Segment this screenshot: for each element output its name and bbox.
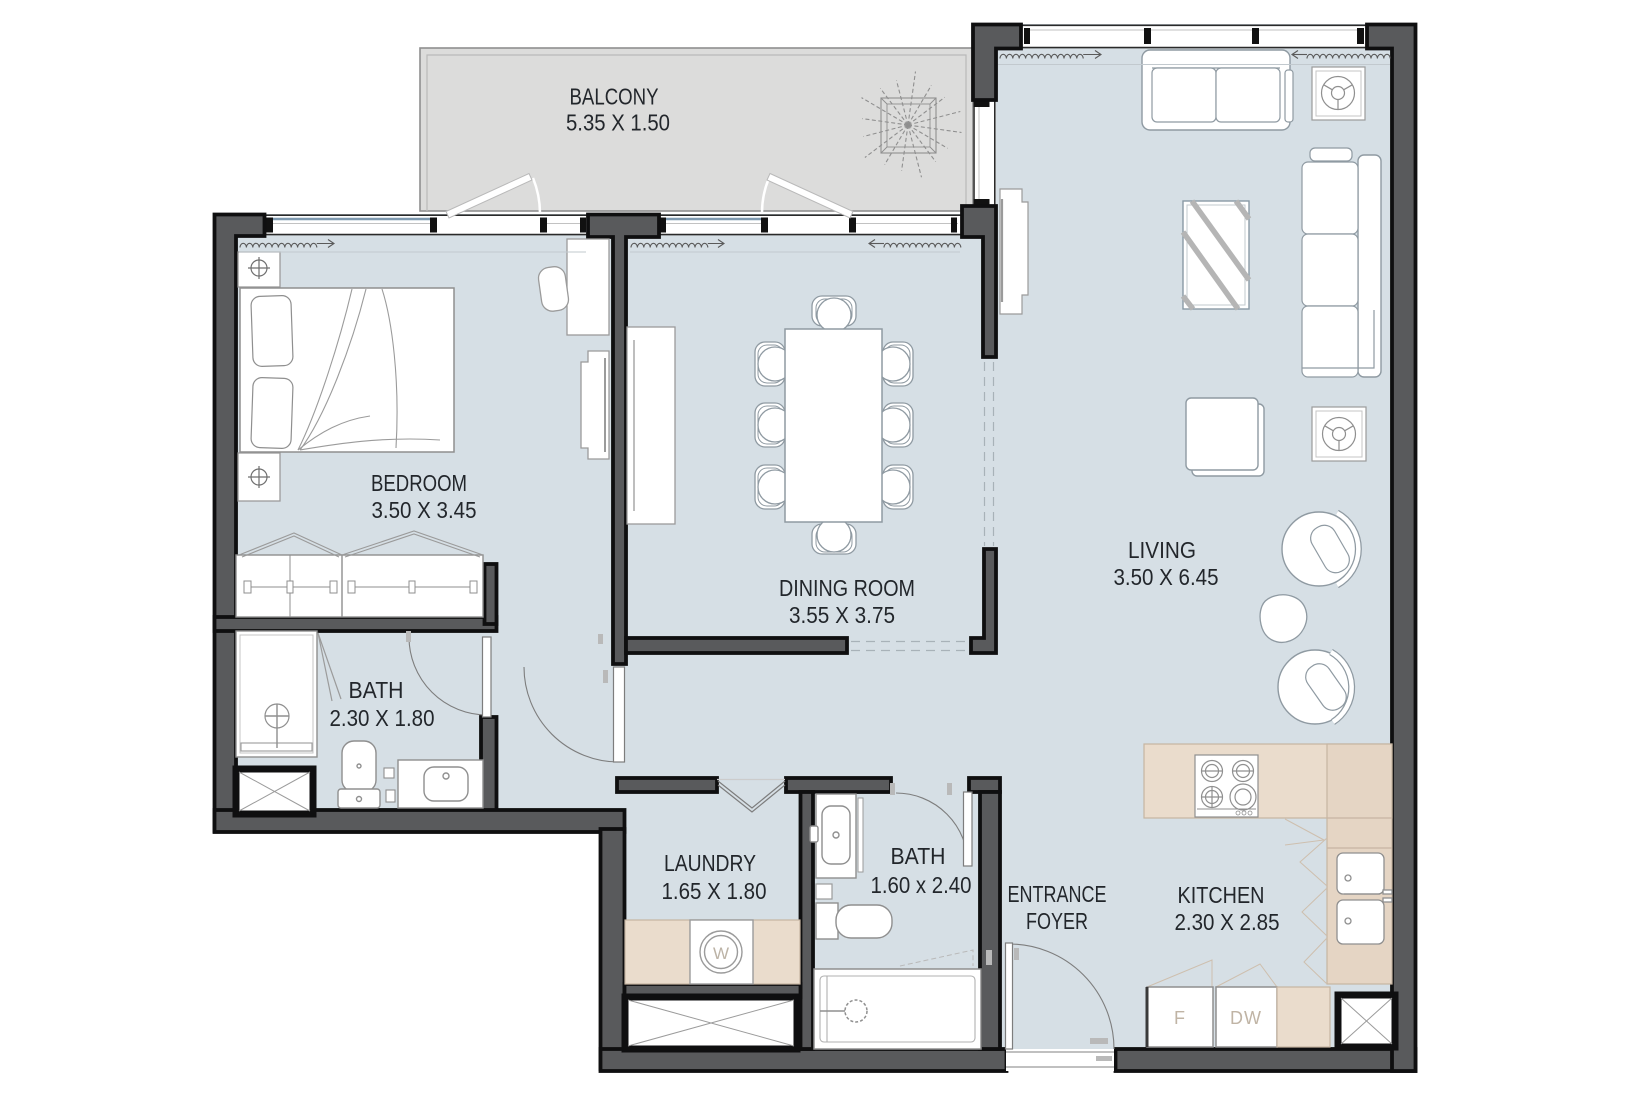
svg-text:DINING ROOM: DINING ROOM — [779, 575, 915, 601]
svg-text:3.50 X 3.45: 3.50 X 3.45 — [372, 497, 477, 523]
svg-text:3.50 X 6.45: 3.50 X 6.45 — [1114, 564, 1219, 590]
svg-text:KITCHEN: KITCHEN — [1178, 882, 1265, 908]
svg-text:BATH: BATH — [349, 677, 404, 703]
svg-text:BEDROOM: BEDROOM — [371, 470, 467, 496]
svg-text:3.55 X 3.75: 3.55 X 3.75 — [789, 602, 895, 628]
svg-text:5.35 X 1.50: 5.35 X 1.50 — [566, 110, 670, 136]
svg-text:BALCONY: BALCONY — [570, 84, 659, 110]
svg-text:2.30 X 1.80: 2.30 X 1.80 — [330, 705, 435, 731]
svg-text:F: F — [1174, 1008, 1186, 1028]
svg-text:W: W — [713, 944, 729, 963]
svg-text:BATH: BATH — [891, 843, 946, 869]
svg-text:2.30 X 2.85: 2.30 X 2.85 — [1175, 909, 1280, 935]
svg-text:ENTRANCE: ENTRANCE — [1008, 881, 1107, 907]
svg-text:FOYER: FOYER — [1026, 908, 1088, 934]
svg-text:1.60 x 2.40: 1.60 x 2.40 — [871, 872, 972, 898]
svg-text:1.65 X 1.80: 1.65 X 1.80 — [662, 878, 767, 904]
svg-text:DW: DW — [1230, 1008, 1262, 1028]
svg-text:LAUNDRY: LAUNDRY — [664, 850, 756, 876]
svg-text:LIVING: LIVING — [1128, 537, 1196, 563]
